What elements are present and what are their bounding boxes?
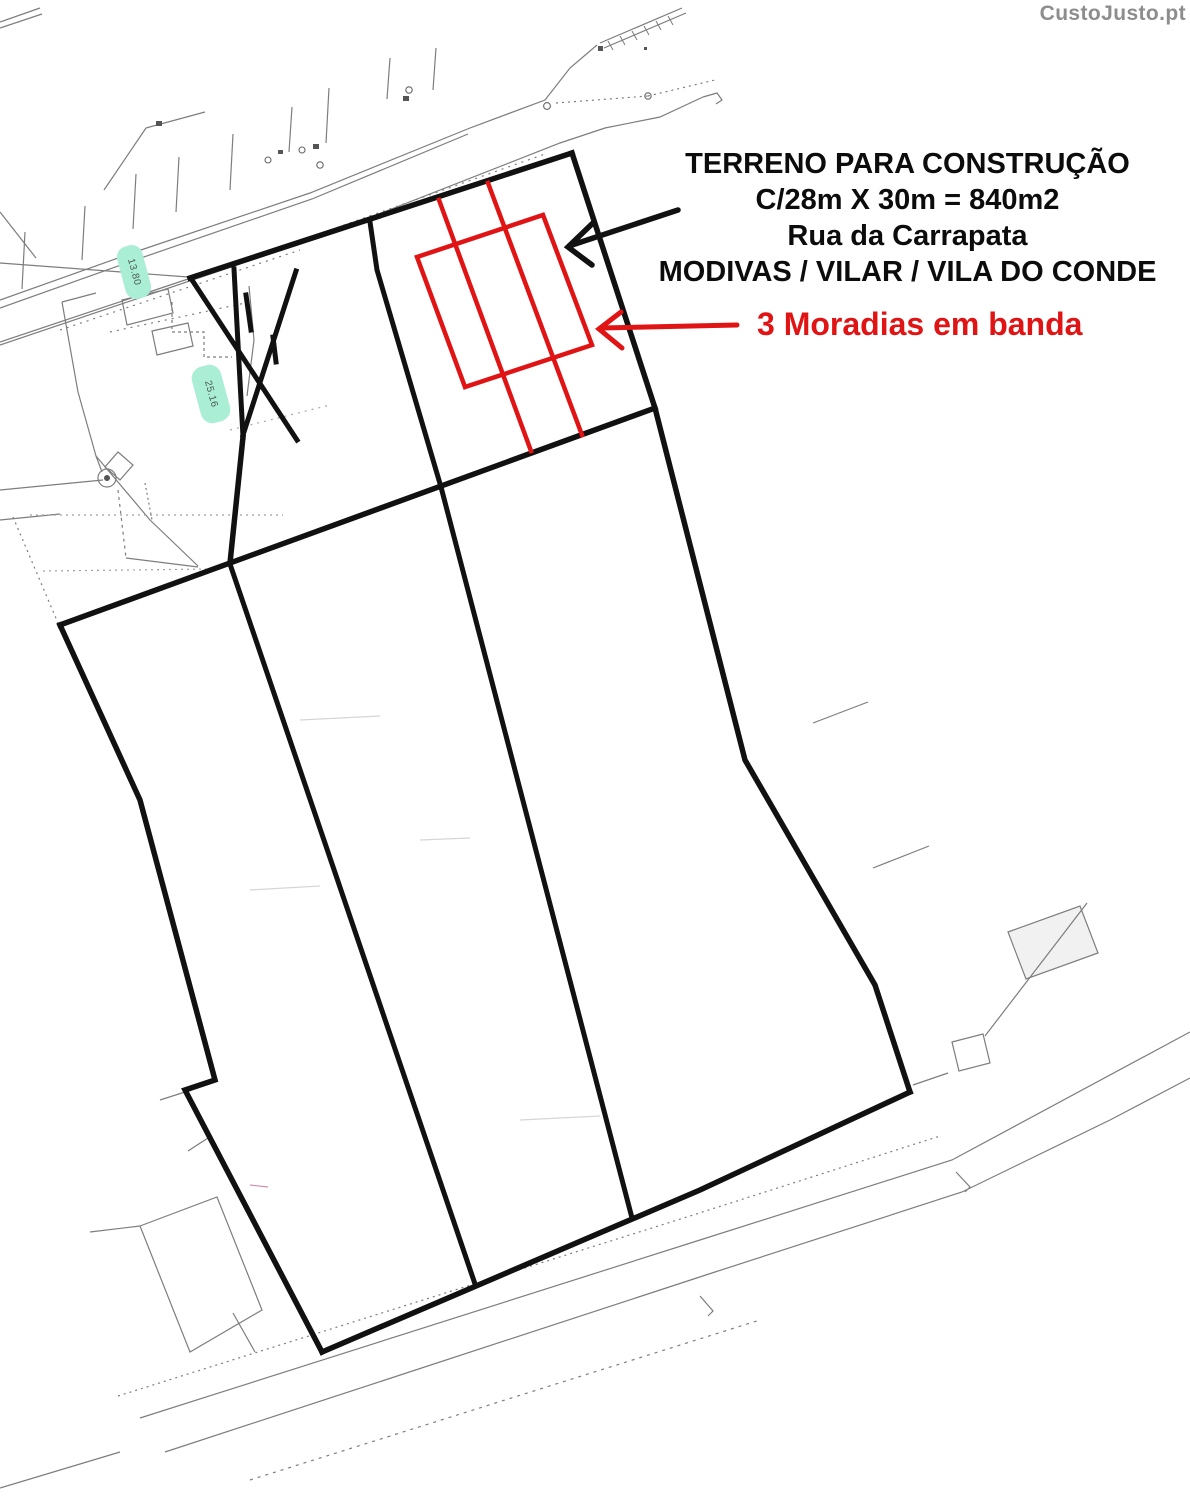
divider-strip-2 xyxy=(441,487,632,1218)
title-line-3: Rua da Carrapata xyxy=(625,218,1190,254)
site-plan-scan: 13.80 25.16 xyxy=(0,0,1190,1500)
boundary-upper-left xyxy=(230,437,243,563)
boundary-east xyxy=(572,153,910,1092)
title-line-2: C/28m X 30m = 840m2 xyxy=(625,182,1190,218)
red-plot-overlay xyxy=(417,183,592,451)
survey-marker-dots xyxy=(278,46,647,154)
title-line-4: MODIVAS / VILAR / VILA DO CONDE xyxy=(625,254,1190,290)
measure-highlight-2: 25.16 xyxy=(189,362,233,426)
listing-title-block: TERRENO PARA CONSTRUÇÃO C/28m X 30m = 84… xyxy=(625,146,1190,290)
red-arrow xyxy=(599,312,737,348)
divider-upper xyxy=(370,222,441,487)
red-band-line-1 xyxy=(439,200,531,451)
boundary-west xyxy=(60,625,322,1352)
red-plot-rectangle xyxy=(417,215,592,387)
survey-marker-circles xyxy=(265,87,651,168)
red-band-line-2 xyxy=(488,183,582,435)
title-line-1: TERRENO PARA CONSTRUÇÃO xyxy=(625,146,1190,182)
divider-strip-1 xyxy=(230,564,475,1284)
boundary-south xyxy=(322,1092,910,1352)
parcel-dividers xyxy=(230,222,632,1284)
custojusto-watermark: CustoJusto.pt xyxy=(1040,2,1186,26)
red-annotation-label: 3 Moradias em banda xyxy=(757,306,1082,343)
boundary-middle xyxy=(60,408,655,625)
